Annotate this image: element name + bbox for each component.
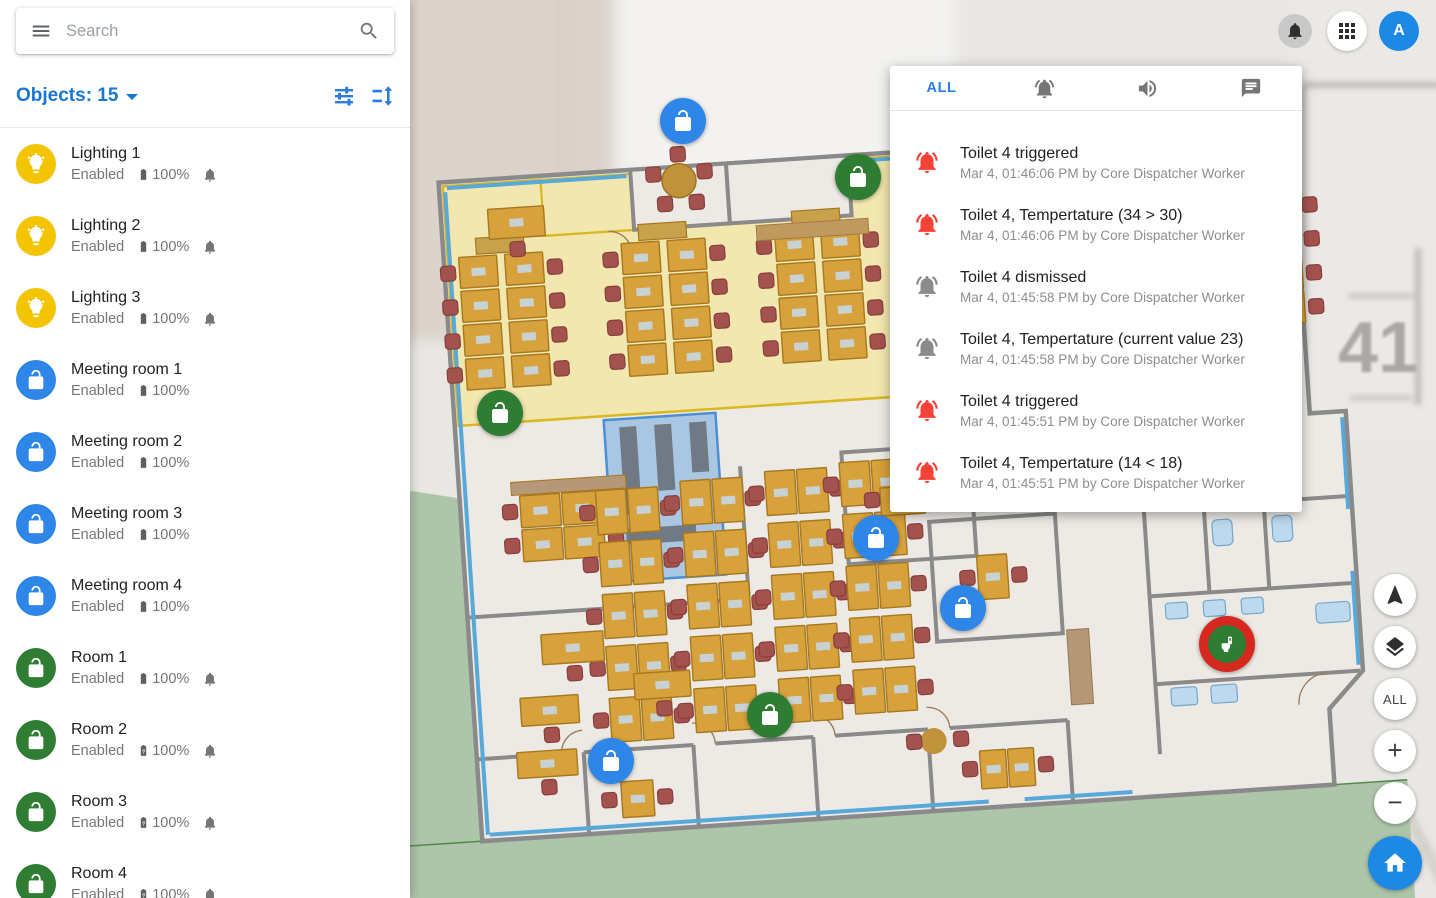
sidebar: Objects: 15 [0, 0, 410, 898]
room-lock-marker[interactable] [747, 692, 793, 738]
object-list-item[interactable]: Room 1 Enabled 100% [0, 632, 410, 704]
object-list-item[interactable]: Lighting 3 Enabled 100% [0, 272, 410, 344]
notification-title: Toilet 4 dismissed [960, 268, 1245, 288]
bell-icon [202, 815, 218, 831]
volume-icon [1136, 77, 1159, 100]
bell-icon [202, 743, 218, 759]
notification-item[interactable]: Toilet 4, Tempertature (34 > 30) Mar 4, … [890, 193, 1302, 255]
app-window: 41 [0, 0, 1436, 898]
object-status: Enabled [71, 743, 124, 759]
compass-button[interactable] [1374, 574, 1416, 616]
home-button[interactable] [1368, 836, 1422, 890]
lock-open-icon [951, 596, 975, 620]
lock-open-icon [671, 109, 695, 133]
battery-level: 100% [152, 455, 189, 471]
lightbulb-icon [25, 153, 47, 175]
lock-open-icon [758, 703, 782, 727]
bell-icon [202, 167, 218, 183]
object-name: Room 1 [71, 649, 218, 667]
lighting-icon [16, 144, 56, 184]
show-all-label: ALL [1383, 692, 1407, 707]
object-list-item[interactable]: Meeting room 1 Enabled 100% [0, 344, 410, 416]
lighting-icon [16, 288, 56, 328]
room-icon [16, 648, 56, 688]
search-input[interactable] [64, 21, 346, 42]
avatar[interactable]: A [1379, 11, 1419, 51]
object-name: Lighting 3 [71, 289, 218, 307]
object-status: Enabled [71, 671, 124, 687]
object-name: Meeting room 3 [71, 505, 202, 523]
notification-item[interactable]: Toilet 4 dismissed Mar 4, 01:45:58 PM by… [890, 255, 1302, 317]
apps-grid-button[interactable] [1327, 11, 1367, 51]
menu-icon[interactable] [30, 20, 52, 42]
notification-meta: Mar 4, 01:46:06 PM by Core Dispatcher Wo… [960, 228, 1245, 243]
notification-tabs: ALL [890, 66, 1302, 111]
battery-level: 100% [152, 887, 189, 898]
svg-text:?: ? [142, 749, 145, 755]
lock-open-icon [25, 873, 47, 895]
meeting-icon [16, 504, 56, 544]
bell-icon [1285, 21, 1305, 41]
notification-item[interactable]: Toilet 4 triggered Mar 4, 01:45:51 PM by… [890, 379, 1302, 441]
bell-icon [202, 887, 218, 898]
battery-icon [137, 670, 150, 687]
object-name: Lighting 1 [71, 145, 218, 163]
battery-level: 100% [152, 167, 189, 183]
show-all-button[interactable]: ALL [1374, 678, 1416, 720]
lock-open-icon [864, 526, 888, 550]
tab-sounds[interactable] [1096, 66, 1199, 110]
bell-icon [202, 671, 218, 687]
lock-open-icon [25, 369, 47, 391]
bell-ring-icon [914, 397, 940, 423]
object-list-item[interactable]: Lighting 1 Enabled 100% [0, 128, 410, 200]
bell-ring-icon [914, 335, 940, 361]
bell-ring-icon [1033, 77, 1056, 100]
battery-icon [137, 598, 150, 615]
bell-ring-icon [914, 211, 940, 237]
lock-open-icon [25, 657, 47, 679]
notification-item[interactable]: Toilet 4 dismissed [890, 503, 1302, 512]
object-list-item[interactable]: Meeting room 4 Enabled 100% [0, 560, 410, 632]
room-icon [16, 792, 56, 832]
battery-level: 100% [152, 743, 189, 759]
battery-level: 100% [152, 311, 189, 327]
battery-level: 100% [152, 599, 189, 615]
battery-level: 100% [152, 671, 189, 687]
room-lock-marker[interactable] [477, 390, 523, 436]
room-lock-marker[interactable] [835, 154, 881, 200]
lightbulb-icon [25, 225, 47, 247]
home-icon [1382, 850, 1408, 876]
chevron-down-icon [126, 94, 138, 100]
notification-title: Toilet 4 triggered [960, 144, 1245, 164]
alarm-bell-icon [914, 335, 940, 361]
search-icon[interactable] [358, 20, 380, 42]
notification-title: Toilet 4, Tempertature (14 < 18) [960, 454, 1245, 474]
tab-messages[interactable] [1199, 66, 1302, 110]
object-list-item[interactable]: Lighting 2 Enabled 100% [0, 200, 410, 272]
object-name: Room 4 [71, 865, 218, 883]
object-status: Enabled [71, 599, 124, 615]
lock-open-icon [25, 801, 47, 823]
alarm-bell-icon [914, 459, 940, 485]
room-icon [16, 720, 56, 760]
meeting-icon [16, 576, 56, 616]
bell-ring-icon [914, 273, 940, 299]
notification-meta: Mar 4, 01:46:06 PM by Core Dispatcher Wo… [960, 166, 1245, 181]
object-name: Meeting room 4 [71, 577, 202, 595]
battery-level: 100% [152, 239, 189, 255]
lightbulb-icon [25, 297, 47, 319]
room-icon [16, 864, 56, 898]
object-status: Enabled [71, 167, 124, 183]
object-status: Enabled [71, 455, 124, 471]
notification-title: Toilet 4, Tempertature (34 > 30) [960, 206, 1245, 226]
object-name: Lighting 2 [71, 217, 218, 235]
notification-list: Toilet 4 triggered Mar 4, 01:46:06 PM by… [890, 111, 1302, 512]
notification-item[interactable]: Toilet 4, Tempertature (current value 23… [890, 317, 1302, 379]
lock-open-icon [25, 729, 47, 751]
lighting-icon [16, 216, 56, 256]
notification-meta: Mar 4, 01:45:51 PM by Core Dispatcher Wo… [960, 476, 1245, 491]
notification-meta: Mar 4, 01:45:58 PM by Core Dispatcher Wo… [960, 290, 1245, 305]
battery-icon: ? [137, 886, 150, 898]
layers-icon [1383, 635, 1407, 659]
tab-alarms[interactable] [993, 66, 1096, 110]
chat-icon [1240, 77, 1262, 99]
battery-icon [137, 166, 150, 183]
navigation-icon [1383, 583, 1407, 607]
objects-count-dropdown[interactable]: Objects: 15 [16, 85, 138, 107]
filter-button[interactable] [333, 84, 357, 108]
notification-item[interactable]: Toilet 4, Tempertature (14 < 18) Mar 4, … [890, 441, 1302, 503]
meeting-room-lock-marker[interactable] [853, 515, 899, 561]
lock-open-icon [599, 749, 623, 773]
meeting-room-lock-marker[interactable] [940, 585, 986, 631]
zoom-in-button[interactable]: + [1374, 730, 1416, 772]
notification-panel: ALL Toilet 4 triggered Mar 4, 01:46:06 P… [890, 66, 1302, 512]
search-card [16, 8, 394, 54]
tab-all[interactable]: ALL [890, 66, 993, 110]
objects-header: Objects: 15 [0, 78, 410, 114]
bell-icon [202, 311, 218, 327]
lock-open-icon [25, 513, 47, 535]
object-name: Meeting room 2 [71, 433, 202, 451]
object-status: Enabled [71, 527, 124, 543]
object-list-item[interactable]: Meeting room 3 Enabled 100% [0, 488, 410, 560]
lock-open-icon [25, 585, 47, 607]
notification-meta: Mar 4, 01:45:51 PM by Core Dispatcher Wo… [960, 414, 1245, 429]
object-list-item[interactable]: Room 4 Enabled ? 100% [0, 848, 410, 898]
battery-icon [137, 382, 150, 399]
object-list: Lighting 1 Enabled 100% Lighting 2 Enabl… [0, 127, 410, 898]
battery-level: 100% [152, 383, 189, 399]
svg-text:?: ? [142, 893, 145, 898]
object-status: Enabled [71, 239, 124, 255]
object-list-item[interactable]: Meeting room 2 Enabled 100% [0, 416, 410, 488]
object-list-item[interactable]: Room 2 Enabled ? 100% [0, 704, 410, 776]
notification-meta: Mar 4, 01:45:58 PM by Core Dispatcher Wo… [960, 352, 1245, 367]
battery-icon [137, 238, 150, 255]
meeting-icon [16, 360, 56, 400]
apps-grid-icon [1338, 22, 1356, 40]
object-status: Enabled [71, 383, 124, 399]
object-list-item[interactable]: Room 3 Enabled ? 100% [0, 776, 410, 848]
battery-icon [137, 526, 150, 543]
battery-icon: ? [137, 814, 150, 831]
object-status: Enabled [71, 815, 124, 831]
bell-ring-icon [914, 149, 940, 175]
svg-text:?: ? [142, 821, 145, 827]
meeting-room-lock-marker[interactable] [588, 738, 634, 784]
toilet-icon [1217, 634, 1238, 655]
alarm-bell-icon [914, 211, 940, 237]
notification-item[interactable]: Toilet 4 triggered Mar 4, 01:46:06 PM by… [890, 131, 1302, 193]
bell-ring-icon [914, 459, 940, 485]
object-name: Meeting room 1 [71, 361, 202, 379]
meeting-icon [16, 432, 56, 472]
zoom-out-button[interactable]: − [1374, 782, 1416, 824]
alarm-bell-icon [914, 273, 940, 299]
alarm-bell-icon [914, 149, 940, 175]
basemap-building-label: 41 [1338, 308, 1418, 388]
toilet-alarm-marker[interactable] [1199, 616, 1255, 672]
meeting-room-lock-marker[interactable] [660, 98, 706, 144]
bell-icon [202, 239, 218, 255]
battery-icon: ? [137, 742, 150, 759]
object-status: Enabled [71, 311, 124, 327]
lock-open-icon [846, 165, 870, 189]
battery-level: 100% [152, 527, 189, 543]
notification-title: Toilet 4 triggered [960, 392, 1245, 412]
alarm-bell-icon [914, 397, 940, 423]
battery-icon [137, 454, 150, 471]
notification-title: Toilet 4, Tempertature (current value 23… [960, 330, 1245, 350]
battery-level: 100% [152, 815, 189, 831]
object-status: Enabled [71, 887, 124, 898]
sort-button[interactable] [370, 84, 394, 108]
notifications-button[interactable] [1278, 14, 1312, 48]
object-name: Room 3 [71, 793, 218, 811]
lock-open-icon [25, 441, 47, 463]
lock-open-icon [488, 401, 512, 425]
layers-button[interactable] [1374, 626, 1416, 668]
object-name: Room 2 [71, 721, 218, 739]
battery-icon [137, 310, 150, 327]
